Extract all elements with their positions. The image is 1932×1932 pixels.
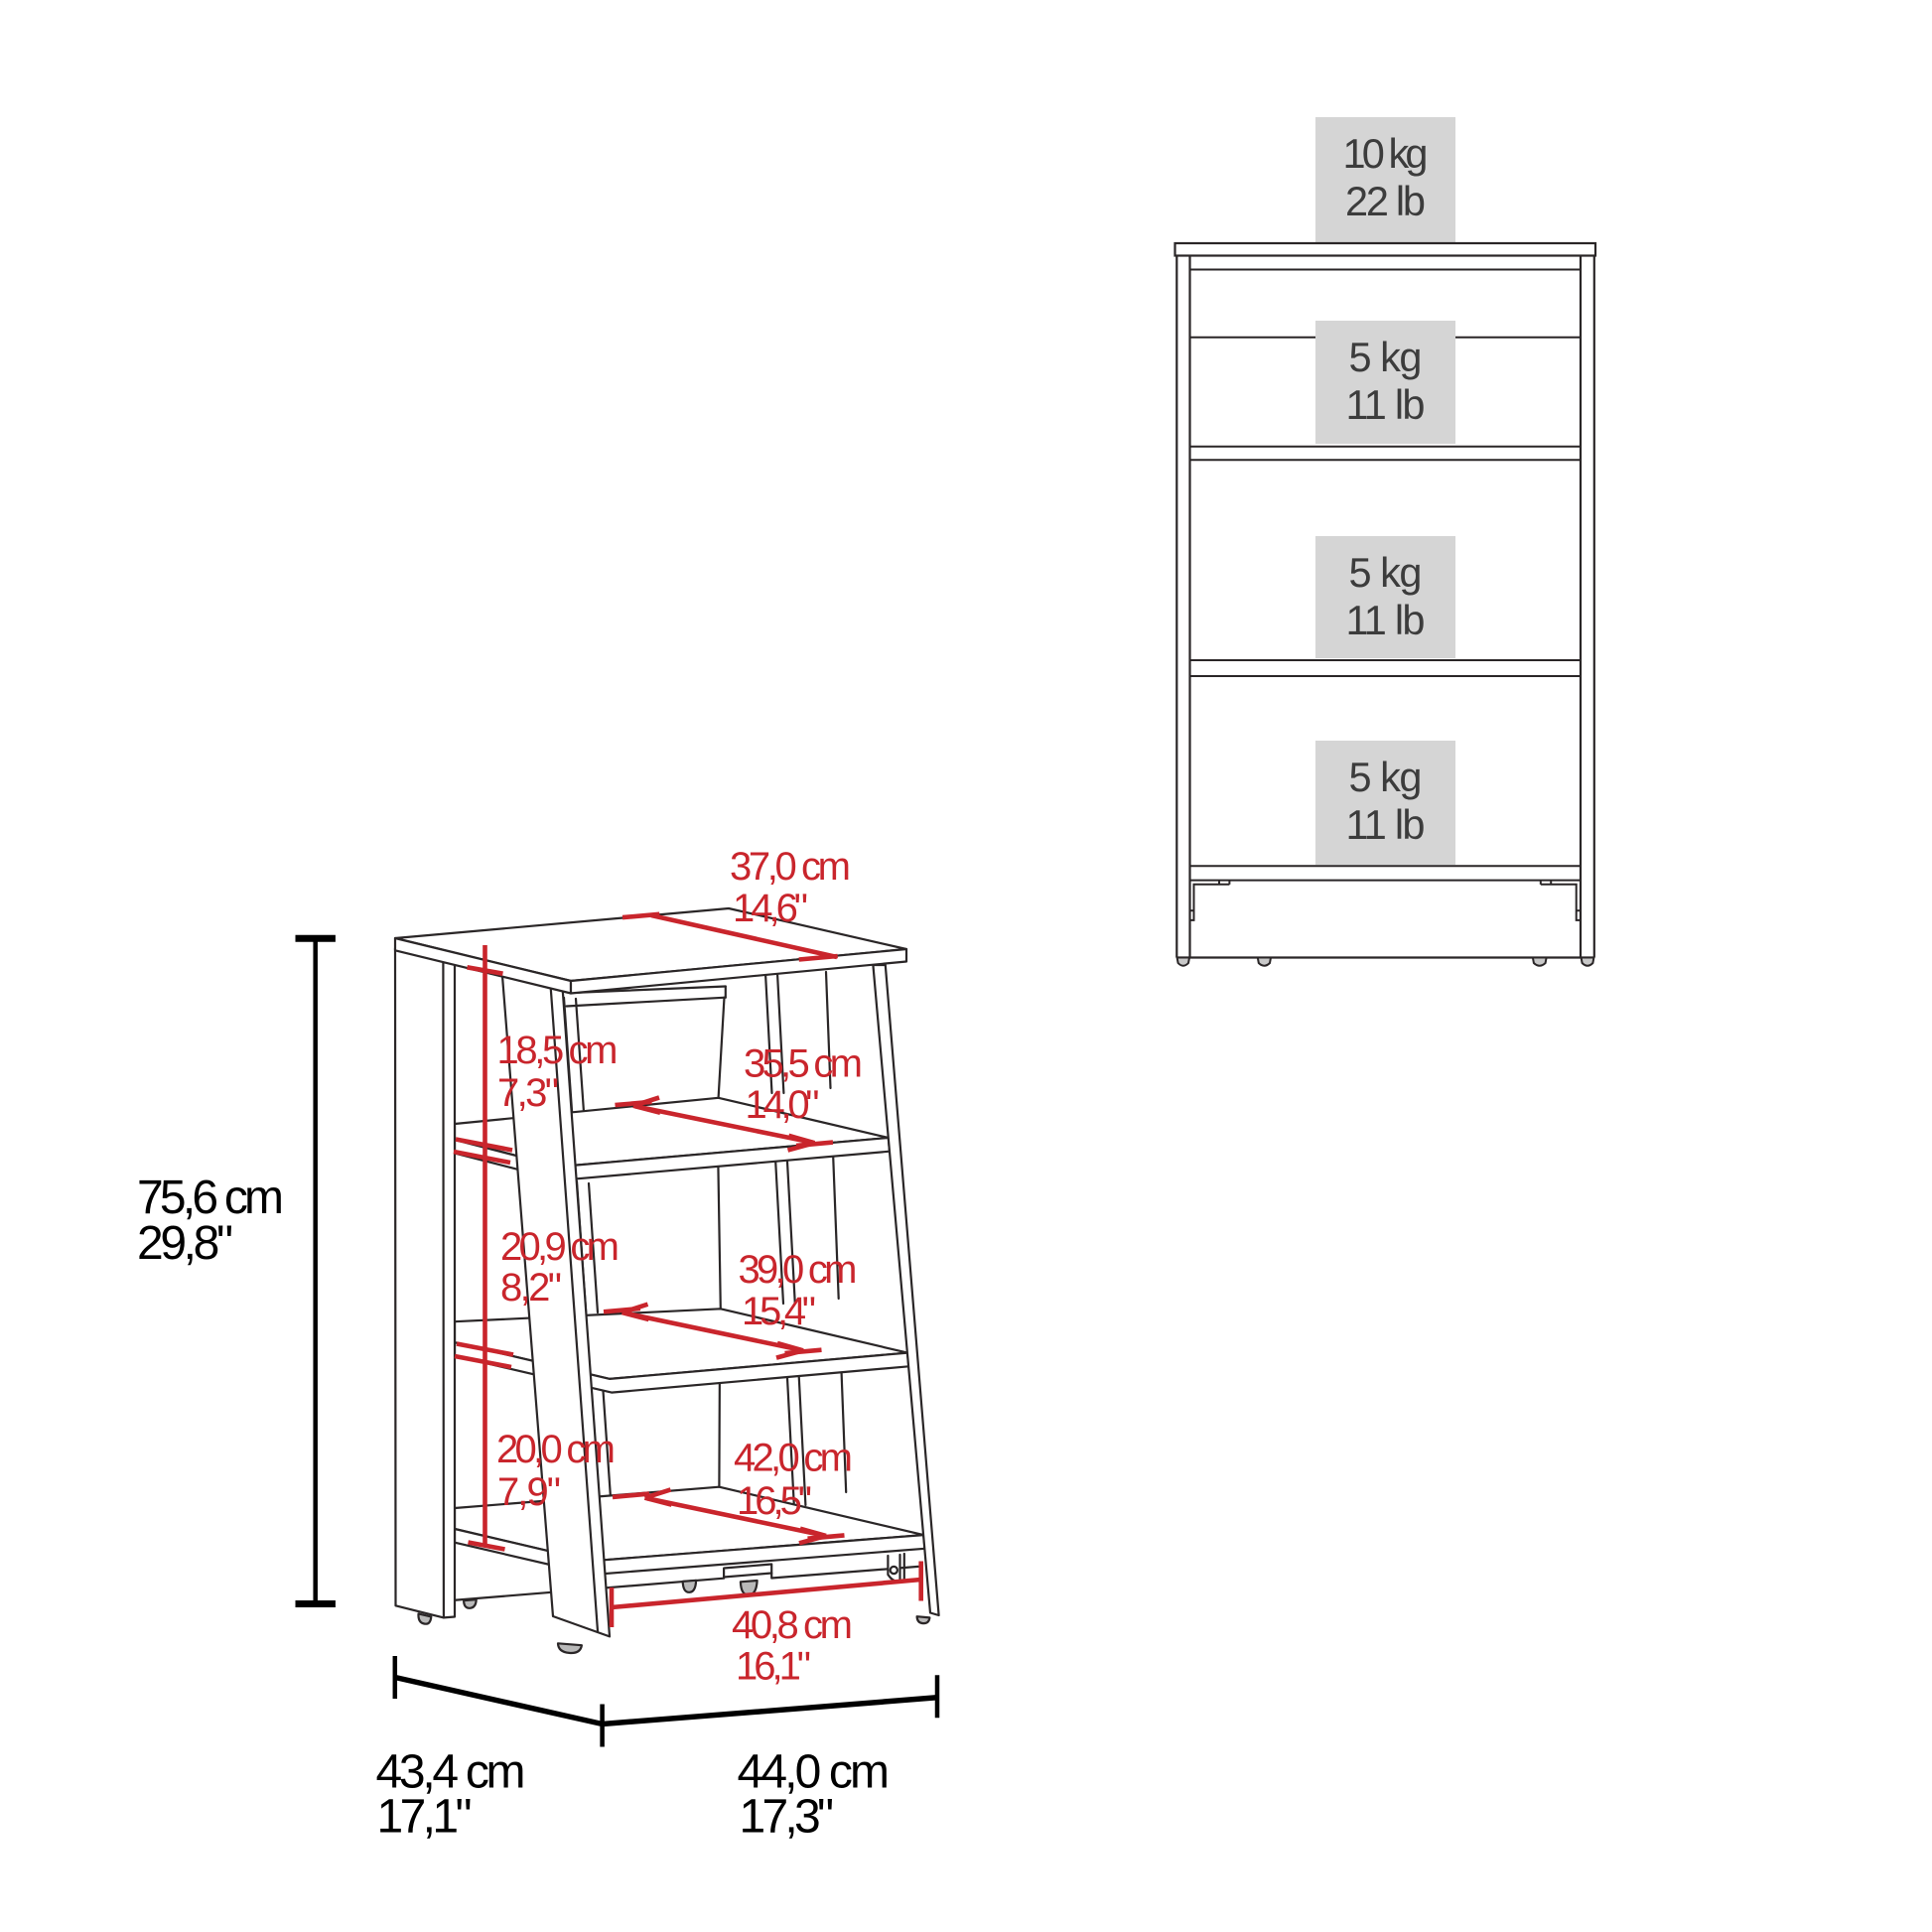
svg-text:11 lb: 11 lb bbox=[1346, 381, 1426, 428]
svg-text:39,0 cm: 39,0 cm bbox=[739, 1248, 858, 1292]
svg-text:15,4": 15,4" bbox=[742, 1290, 816, 1333]
svg-text:10 kg: 10 kg bbox=[1343, 130, 1429, 177]
svg-text:5 kg: 5 kg bbox=[1349, 334, 1423, 380]
svg-text:17,3": 17,3" bbox=[740, 1791, 835, 1844]
svg-text:11 lb: 11 lb bbox=[1346, 597, 1426, 643]
svg-text:20,0 cm: 20,0 cm bbox=[496, 1428, 616, 1471]
svg-text:37,0 cm: 37,0 cm bbox=[730, 845, 851, 889]
svg-text:5 kg: 5 kg bbox=[1349, 754, 1423, 800]
svg-text:42,0 cm: 42,0 cm bbox=[734, 1437, 853, 1480]
svg-text:18,5 cm: 18,5 cm bbox=[497, 1029, 619, 1072]
svg-text:29,8": 29,8" bbox=[137, 1217, 233, 1270]
svg-text:14,6": 14,6" bbox=[733, 887, 808, 930]
svg-text:20,9 cm: 20,9 cm bbox=[500, 1225, 620, 1269]
svg-text:8,2": 8,2" bbox=[500, 1266, 562, 1310]
svg-text:22 lb: 22 lb bbox=[1345, 178, 1426, 224]
svg-text:16,1": 16,1" bbox=[736, 1645, 811, 1689]
svg-text:7,9": 7,9" bbox=[497, 1470, 561, 1514]
svg-text:5 kg: 5 kg bbox=[1349, 549, 1423, 596]
svg-text:40,8 cm: 40,8 cm bbox=[732, 1603, 853, 1647]
svg-text:17,1": 17,1" bbox=[377, 1791, 473, 1844]
svg-text:7,3": 7,3" bbox=[497, 1071, 559, 1115]
svg-text:16,5": 16,5" bbox=[737, 1479, 812, 1523]
svg-text:11 lb: 11 lb bbox=[1346, 801, 1426, 848]
svg-text:35,5 cm: 35,5 cm bbox=[744, 1042, 863, 1086]
svg-text:14,0": 14,0" bbox=[746, 1083, 820, 1127]
